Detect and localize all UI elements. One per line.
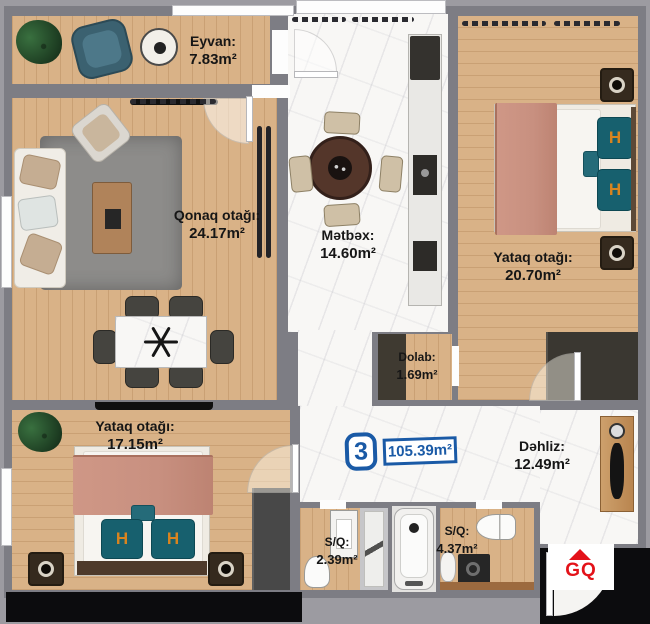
coffee-table bbox=[92, 182, 132, 254]
nightstand-decor bbox=[218, 561, 234, 577]
door-opening bbox=[320, 500, 346, 509]
curtain-icon bbox=[462, 21, 546, 26]
room-label-sq1: S/Q: 2.39m² bbox=[297, 535, 377, 568]
room-area: 24.17m² bbox=[147, 224, 287, 244]
sofa bbox=[14, 148, 66, 288]
bathtub-step bbox=[405, 581, 423, 586]
room-area: 4.37m² bbox=[417, 540, 497, 557]
headboard bbox=[631, 107, 636, 231]
room-label-sq2: S/Q: 4.37m² bbox=[417, 524, 497, 557]
window bbox=[1, 196, 12, 288]
pillow-monogram: H bbox=[167, 529, 179, 549]
door-leaf bbox=[246, 96, 253, 142]
room-name: Eyvan: bbox=[153, 32, 273, 50]
pillow: H bbox=[101, 519, 143, 559]
room-label-yataq1: Yataq otağı: 20.70m² bbox=[463, 248, 603, 286]
apartment-number-badge: 3 bbox=[344, 432, 377, 471]
floor-plan: H H H H bbox=[0, 0, 650, 624]
pillow-monogram: H bbox=[609, 180, 621, 200]
window bbox=[1, 468, 12, 546]
headboard bbox=[77, 561, 207, 575]
kitchen-counter bbox=[408, 34, 442, 306]
pillow: H bbox=[597, 169, 633, 211]
room-name: Yataq otağı: bbox=[65, 417, 205, 435]
room-name: S/Q: bbox=[297, 535, 377, 551]
bed: H H bbox=[74, 446, 210, 576]
pillow-monogram: H bbox=[116, 529, 128, 549]
pillow: H bbox=[597, 117, 633, 159]
room-area: 17.15m² bbox=[65, 435, 205, 455]
dining-table bbox=[115, 316, 207, 368]
window bbox=[172, 5, 294, 16]
room-label-dehliz: Dəhliz: 12.49m² bbox=[472, 437, 612, 475]
room-label-qonaq: Qonaq otağı: 24.17m² bbox=[147, 206, 287, 244]
pillow: H bbox=[151, 519, 195, 559]
nightstand bbox=[208, 552, 244, 586]
door-leaf bbox=[292, 444, 299, 493]
door-opening bbox=[476, 500, 502, 509]
room-name: S/Q: bbox=[417, 524, 497, 540]
dining-chair bbox=[210, 330, 234, 364]
total-area-value: 105.39m² bbox=[383, 436, 458, 466]
nightstand bbox=[28, 552, 64, 586]
tv bbox=[95, 402, 213, 410]
room-name: Mətbəx: bbox=[288, 226, 408, 244]
armchair-cushion bbox=[80, 112, 122, 154]
nightstand-decor bbox=[609, 77, 625, 93]
room-name: Qonaq otağı: bbox=[147, 206, 287, 224]
sofa-cushion bbox=[18, 232, 63, 276]
curtain-icon bbox=[554, 21, 620, 26]
door-opening bbox=[272, 30, 288, 74]
entrance-logo-area: GQ bbox=[548, 544, 614, 590]
door-leaf bbox=[574, 352, 581, 401]
sofa-cushion bbox=[17, 195, 59, 232]
plant-icon bbox=[18, 412, 62, 452]
faucet-icon bbox=[421, 169, 429, 177]
curtain-icon bbox=[292, 17, 346, 22]
kitchen-sink bbox=[413, 155, 437, 195]
kitchen-chair bbox=[323, 203, 360, 227]
blanket bbox=[495, 103, 557, 235]
kitchen-table bbox=[308, 136, 372, 200]
nightstand-decor bbox=[609, 245, 625, 261]
vanity-counter bbox=[440, 582, 534, 590]
total-area-badge: 3 105.39m² bbox=[344, 429, 465, 473]
fridge bbox=[410, 36, 440, 80]
kitchen-chair bbox=[288, 155, 314, 193]
room-label-eyvan: Eyvan: 7.83m² bbox=[153, 32, 273, 70]
door-opening bbox=[252, 85, 290, 98]
cooktop bbox=[413, 241, 437, 271]
room-label-dolab: Dolab: 1.69m² bbox=[377, 350, 457, 383]
room-yataq1: H H bbox=[458, 16, 638, 400]
entrance-arrow-icon bbox=[569, 549, 591, 560]
wardrobe bbox=[252, 488, 290, 590]
room-area: 20.70m² bbox=[463, 266, 603, 286]
logo: GQ bbox=[548, 560, 614, 582]
dining-chair bbox=[93, 330, 117, 364]
coat-rack-icon bbox=[610, 443, 624, 499]
kitchen-chair bbox=[378, 155, 403, 193]
plant-icon bbox=[16, 20, 62, 64]
room-area: 12.49m² bbox=[472, 455, 612, 475]
balcony-chair bbox=[68, 16, 135, 82]
room-name: Dolab: bbox=[377, 350, 457, 366]
room-qonaq bbox=[12, 98, 277, 400]
curtain-icon bbox=[352, 17, 414, 22]
window bbox=[296, 0, 446, 14]
room-area: 14.60m² bbox=[288, 244, 408, 264]
pillow-monogram: H bbox=[609, 128, 621, 148]
washer-door-icon bbox=[466, 562, 480, 576]
nightstand bbox=[600, 236, 634, 270]
room-name: Dəhliz: bbox=[472, 437, 612, 455]
kitchen-chair bbox=[323, 111, 360, 135]
kitchen-table-decor bbox=[328, 156, 352, 180]
bottom-shadow-strip bbox=[6, 592, 302, 622]
sofa-cushion bbox=[18, 153, 61, 190]
hall-connector bbox=[298, 330, 372, 406]
room-area: 2.39m² bbox=[297, 551, 377, 568]
coffee-table-decor bbox=[105, 209, 121, 229]
nightstand bbox=[600, 68, 634, 102]
room-area: 7.83m² bbox=[153, 50, 273, 70]
curtain-icon bbox=[130, 99, 216, 104]
room-label-yataq2: Yataq otağı: 17.15m² bbox=[65, 417, 205, 455]
room-name: Yataq otağı: bbox=[463, 248, 603, 266]
room-area: 1.69m² bbox=[377, 366, 457, 383]
door-leaf bbox=[294, 71, 338, 78]
bed: H H bbox=[494, 104, 636, 232]
room-label-metbex: Mətbəx: 14.60m² bbox=[288, 226, 408, 264]
nightstand-decor bbox=[38, 561, 54, 577]
balcony-chair-cushion bbox=[80, 28, 123, 70]
